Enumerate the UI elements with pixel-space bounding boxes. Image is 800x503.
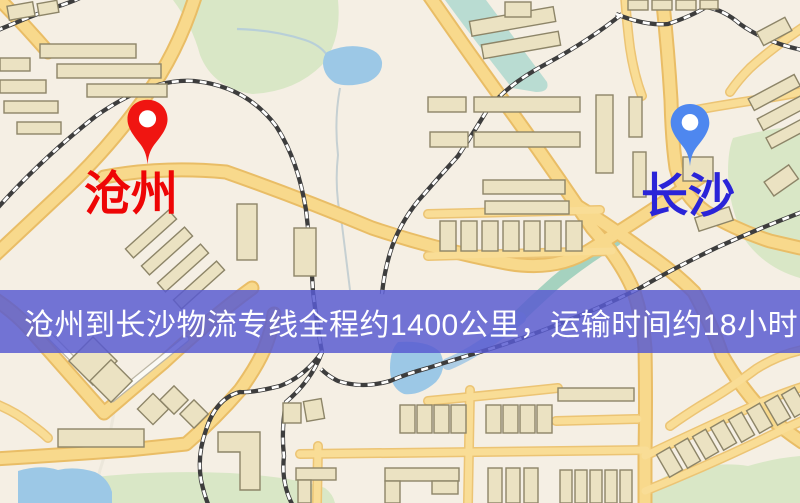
map-screenshot: 沧州到长沙物流专线全程约1400公里，运输时间约18小时17分钟. 沧州 长沙 — [0, 0, 800, 503]
origin-location-pin-icon — [126, 98, 169, 168]
route-info-banner: 沧州到长沙物流专线全程约1400公里，运输时间约18小时17分钟. — [0, 290, 800, 353]
destination-location-pin-icon — [669, 103, 711, 169]
route-info-text: 沧州到长沙物流专线全程约1400公里，运输时间约18小时17分钟. — [24, 300, 800, 344]
origin-city-label: 沧州 — [84, 170, 178, 219]
map-base-layer — [0, 0, 800, 503]
destination-city-label: 长沙 — [641, 172, 735, 221]
